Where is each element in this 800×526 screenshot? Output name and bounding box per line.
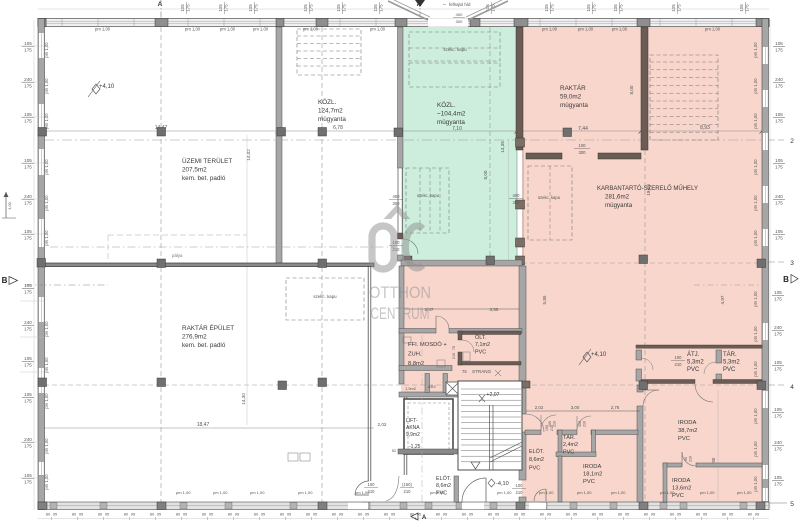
svg-text:ÁTJ.: ÁTJ. bbox=[687, 351, 700, 358]
svg-text:IRODA: IRODA bbox=[583, 464, 601, 470]
svg-text:RAKTÁR ÉPÜLET: RAKTÁR ÉPÜLET bbox=[182, 323, 234, 332]
svg-text:pm 1,00: pm 1,00 bbox=[611, 490, 626, 495]
svg-text:pm 1,00: pm 1,00 bbox=[753, 230, 758, 246]
svg-text:105: 105 bbox=[24, 473, 32, 478]
svg-text:pm 1,00: pm 1,00 bbox=[253, 27, 269, 32]
svg-text:95: 95 bbox=[625, 513, 629, 517]
svg-text:80: 80 bbox=[670, 513, 674, 517]
svg-text:mügyanta: mügyanta bbox=[318, 116, 346, 123]
svg-text:175: 175 bbox=[341, 4, 346, 12]
svg-text:80: 80 bbox=[566, 513, 570, 517]
svg-text:175: 175 bbox=[676, 4, 681, 12]
svg-text:59,0m2: 59,0m2 bbox=[560, 94, 582, 101]
svg-text:175: 175 bbox=[774, 332, 782, 337]
svg-text:pm 1,00: pm 1,00 bbox=[250, 490, 265, 495]
svg-text:80: 80 bbox=[124, 513, 128, 517]
svg-text:105: 105 bbox=[774, 290, 782, 295]
svg-text:175: 175 bbox=[775, 201, 783, 206]
svg-text:175: 175 bbox=[24, 84, 32, 89]
svg-text:pm 1,00: pm 1,00 bbox=[578, 27, 594, 32]
svg-text:207,5m2: 207,5m2 bbox=[182, 167, 207, 174]
svg-text:175: 175 bbox=[223, 4, 228, 12]
svg-text:szekc. kapu: szekc. kapu bbox=[417, 193, 440, 198]
svg-text:B: B bbox=[783, 275, 789, 284]
svg-text:90: 90 bbox=[684, 457, 688, 461]
svg-text:4,00: 4,00 bbox=[8, 202, 12, 209]
svg-text:175: 175 bbox=[378, 4, 383, 12]
svg-text:80: 80 bbox=[176, 513, 180, 517]
svg-text:175: 175 bbox=[24, 444, 32, 449]
svg-text:175: 175 bbox=[24, 399, 32, 404]
svg-text:7,1m2: 7,1m2 bbox=[475, 342, 490, 348]
svg-text:281,6m2: 281,6m2 bbox=[605, 194, 630, 201]
svg-text:175: 175 bbox=[24, 236, 32, 241]
svg-text:PVC: PVC bbox=[529, 465, 540, 471]
svg-text:CENTRUM: CENTRUM bbox=[371, 304, 430, 323]
svg-text:105: 105 bbox=[24, 41, 32, 46]
svg-text:mügyanta: mügyanta bbox=[560, 102, 588, 109]
svg-text:175: 175 bbox=[308, 4, 313, 12]
svg-text:4: 4 bbox=[790, 384, 794, 391]
svg-text:95: 95 bbox=[521, 513, 525, 517]
svg-text:szekc. kapu: szekc. kapu bbox=[443, 47, 467, 52]
svg-text:2,02: 2,02 bbox=[535, 405, 544, 410]
svg-text:8,8m2: 8,8m2 bbox=[408, 361, 424, 367]
svg-text:80: 80 bbox=[722, 513, 726, 517]
svg-text:7,10: 7,10 bbox=[452, 126, 462, 132]
svg-text:95: 95 bbox=[703, 513, 707, 517]
svg-text:~104,4m2: ~104,4m2 bbox=[437, 111, 466, 118]
svg-text:175: 175 bbox=[774, 447, 782, 452]
svg-text:175: 175 bbox=[774, 414, 782, 419]
svg-text:80: 80 bbox=[462, 513, 466, 517]
svg-text:175: 175 bbox=[24, 165, 32, 170]
svg-text:80: 80 bbox=[72, 513, 76, 517]
svg-text:+4,10: +4,10 bbox=[99, 84, 115, 90]
svg-text:5,3m2: 5,3m2 bbox=[723, 359, 740, 365]
svg-text:felhajtó híd: felhajtó híd bbox=[449, 2, 471, 7]
svg-text:105: 105 bbox=[24, 158, 32, 163]
svg-text:pm 1,00: pm 1,00 bbox=[213, 490, 228, 495]
svg-text:pálya: pálya bbox=[172, 253, 183, 258]
svg-text:80: 80 bbox=[618, 513, 622, 517]
svg-text:95: 95 bbox=[547, 513, 551, 517]
svg-text:80: 80 bbox=[358, 513, 362, 517]
svg-text:8,6m2: 8,6m2 bbox=[529, 457, 544, 463]
svg-text:52: 52 bbox=[392, 448, 397, 453]
svg-text:pm 1,00: pm 1,00 bbox=[700, 490, 715, 495]
svg-text:95: 95 bbox=[495, 513, 499, 517]
svg-text:IRODA: IRODA bbox=[678, 420, 696, 426]
svg-text:pm 1,00: pm 1,00 bbox=[303, 27, 319, 32]
svg-text:105: 105 bbox=[336, 4, 341, 12]
svg-text:TÁR.: TÁR. bbox=[723, 351, 737, 358]
svg-text:ÖLT.: ÖLT. bbox=[475, 334, 486, 341]
svg-text:8,93: 8,93 bbox=[700, 125, 710, 131]
svg-text:-1,25: -1,25 bbox=[409, 444, 421, 450]
svg-text:95: 95 bbox=[729, 513, 733, 517]
svg-text:400: 400 bbox=[513, 193, 521, 198]
svg-text:9,9m2: 9,9m2 bbox=[406, 432, 420, 438]
svg-text:95: 95 bbox=[365, 513, 369, 517]
svg-text:ELŐT.: ELŐT. bbox=[529, 448, 544, 455]
svg-text:105: 105 bbox=[739, 4, 744, 12]
svg-text:18,1m2: 18,1m2 bbox=[583, 472, 602, 478]
svg-text:OTTHON: OTTHON bbox=[369, 283, 431, 302]
svg-text:pm 1,00: pm 1,00 bbox=[185, 27, 201, 32]
svg-text:6,78: 6,78 bbox=[333, 125, 343, 131]
svg-text:pm 1,00: pm 1,00 bbox=[430, 490, 445, 495]
svg-text:75: 75 bbox=[462, 369, 467, 374]
svg-text:B: B bbox=[2, 276, 8, 285]
svg-text:80: 80 bbox=[644, 513, 648, 517]
svg-text:18,47: 18,47 bbox=[197, 422, 210, 428]
svg-text:80: 80 bbox=[228, 513, 232, 517]
svg-text:pm 1,00: pm 1,00 bbox=[705, 27, 721, 32]
svg-text:AKNA: AKNA bbox=[406, 425, 420, 431]
svg-text:pm 1,00: pm 1,00 bbox=[753, 78, 758, 94]
svg-text:80: 80 bbox=[332, 513, 336, 517]
svg-text:105: 105 bbox=[373, 4, 378, 12]
svg-text:175: 175 bbox=[24, 48, 32, 53]
svg-text:pm 1,00: pm 1,00 bbox=[370, 27, 386, 32]
svg-text:pm 1,00: pm 1,00 bbox=[660, 490, 675, 495]
svg-text:pm 1,00: pm 1,00 bbox=[737, 490, 752, 495]
svg-text:210: 210 bbox=[675, 362, 683, 367]
svg-text:pm 1,00: pm 1,00 bbox=[44, 438, 49, 454]
svg-text:95: 95 bbox=[235, 513, 239, 517]
svg-text:pm 1,00: pm 1,00 bbox=[44, 159, 49, 175]
svg-text:mügyanta: mügyanta bbox=[605, 202, 633, 209]
svg-text:105: 105 bbox=[586, 4, 591, 12]
svg-text:95: 95 bbox=[209, 513, 213, 517]
svg-text:95: 95 bbox=[443, 513, 447, 517]
svg-text:105: 105 bbox=[180, 4, 185, 12]
svg-text:14,30: 14,30 bbox=[241, 393, 246, 405]
svg-text:105: 105 bbox=[24, 112, 32, 117]
svg-text:400: 400 bbox=[393, 194, 401, 199]
svg-text:2,4m2: 2,4m2 bbox=[563, 442, 578, 448]
svg-text:105: 105 bbox=[303, 4, 308, 12]
svg-text:100: 100 bbox=[368, 482, 376, 487]
svg-text:7,44: 7,44 bbox=[578, 126, 588, 132]
svg-text:80: 80 bbox=[306, 513, 310, 517]
svg-text:80: 80 bbox=[696, 513, 700, 517]
svg-text:210: 210 bbox=[404, 489, 412, 494]
svg-text:100: 100 bbox=[675, 355, 683, 360]
svg-text:175: 175 bbox=[775, 84, 783, 89]
svg-text:2: 2 bbox=[790, 138, 794, 145]
svg-text:240: 240 bbox=[24, 437, 32, 442]
svg-text:175: 175 bbox=[253, 4, 258, 12]
svg-text:95: 95 bbox=[53, 513, 57, 517]
svg-text:pm 1,00: pm 1,00 bbox=[44, 42, 49, 58]
svg-text:mügyanta: mügyanta bbox=[437, 119, 465, 126]
svg-text:175: 175 bbox=[774, 482, 782, 487]
svg-text:95: 95 bbox=[469, 513, 473, 517]
svg-text:95: 95 bbox=[287, 513, 291, 517]
svg-text:3,00: 3,00 bbox=[571, 405, 580, 410]
svg-text:100: 100 bbox=[548, 421, 552, 427]
svg-text:175: 175 bbox=[744, 4, 749, 12]
svg-text:2,76: 2,76 bbox=[611, 405, 620, 410]
svg-text:14,02: 14,02 bbox=[246, 149, 251, 161]
svg-text:95: 95 bbox=[157, 513, 161, 517]
svg-text:A: A bbox=[422, 515, 427, 521]
svg-text:FFI. MOSDÓ +: FFI. MOSDÓ + bbox=[408, 341, 447, 348]
svg-text:2,02: 2,02 bbox=[378, 422, 387, 427]
svg-text:kem. bet. padló: kem. bet. padló bbox=[182, 342, 226, 349]
svg-text:300: 300 bbox=[456, 19, 463, 24]
svg-text:175: 175 bbox=[24, 201, 32, 206]
svg-text:szekc. kapu: szekc. kapu bbox=[538, 195, 561, 200]
svg-text:240: 240 bbox=[774, 325, 782, 330]
svg-text:240: 240 bbox=[24, 194, 32, 199]
svg-text:95: 95 bbox=[183, 513, 187, 517]
svg-text:300: 300 bbox=[513, 200, 521, 205]
svg-text:80: 80 bbox=[202, 513, 206, 517]
svg-text:pm 1,00: pm 1,00 bbox=[753, 476, 758, 492]
svg-text:pm 1,00: pm 1,00 bbox=[539, 490, 554, 495]
svg-text:pm 1,00: pm 1,00 bbox=[497, 490, 512, 495]
svg-text:75: 75 bbox=[452, 346, 456, 350]
svg-text:-4,10: -4,10 bbox=[496, 481, 509, 487]
svg-text:8,00: 8,00 bbox=[483, 170, 488, 179]
svg-text:PVC: PVC bbox=[678, 436, 690, 442]
svg-text:TÁR.: TÁR. bbox=[563, 434, 575, 441]
svg-text:(150): (150) bbox=[402, 482, 412, 487]
svg-text:PVC: PVC bbox=[687, 367, 700, 373]
svg-text:8,6m2: 8,6m2 bbox=[436, 483, 451, 489]
svg-text:80: 80 bbox=[98, 513, 102, 517]
svg-text:pm 1,00: pm 1,00 bbox=[753, 291, 758, 307]
svg-text:PVC: PVC bbox=[583, 479, 595, 485]
svg-text:95: 95 bbox=[573, 513, 577, 517]
svg-text:240: 240 bbox=[774, 440, 782, 445]
svg-text:95: 95 bbox=[313, 513, 317, 517]
svg-text:kem. bet. padló: kem. bet. padló bbox=[182, 175, 226, 182]
svg-text:175: 175 bbox=[775, 48, 783, 53]
svg-text:240: 240 bbox=[775, 194, 783, 199]
svg-text:95: 95 bbox=[599, 513, 603, 517]
svg-text:pm 1,00: pm 1,00 bbox=[176, 490, 191, 495]
svg-text:105: 105 bbox=[218, 4, 223, 12]
svg-text:13,6m2: 13,6m2 bbox=[672, 485, 691, 491]
svg-text:100: 100 bbox=[578, 421, 582, 427]
svg-text:PVC: PVC bbox=[563, 449, 574, 455]
svg-text:pm 1,00: pm 1,00 bbox=[44, 393, 49, 409]
svg-text:80: 80 bbox=[488, 513, 492, 517]
svg-text:175: 175 bbox=[549, 4, 554, 12]
svg-text:175: 175 bbox=[24, 363, 32, 368]
svg-text:+4,10: +4,10 bbox=[591, 352, 607, 358]
svg-text:pm 1,00: pm 1,00 bbox=[95, 27, 111, 32]
svg-text:ZUH.: ZUH. bbox=[408, 351, 422, 357]
svg-text:pm 1,00: pm 1,00 bbox=[753, 113, 758, 129]
svg-text:80: 80 bbox=[514, 513, 518, 517]
svg-text:240: 240 bbox=[775, 77, 783, 82]
svg-text:175: 175 bbox=[774, 297, 782, 302]
svg-text:276,9m2: 276,9m2 bbox=[182, 334, 207, 341]
svg-text:pm 1,00: pm 1,00 bbox=[542, 27, 558, 32]
svg-text:95: 95 bbox=[261, 513, 265, 517]
svg-text:pm 1,00: pm 1,00 bbox=[44, 195, 49, 211]
svg-text:pm 1,00: pm 1,00 bbox=[753, 326, 758, 342]
svg-text:210: 210 bbox=[452, 353, 456, 359]
svg-text:105: 105 bbox=[774, 407, 782, 412]
svg-text:175: 175 bbox=[775, 165, 783, 170]
svg-text:95: 95 bbox=[755, 513, 759, 517]
svg-text:KÖZL.: KÖZL. bbox=[437, 101, 456, 109]
svg-text:105: 105 bbox=[24, 392, 32, 397]
svg-text:175: 175 bbox=[24, 480, 32, 485]
svg-text:100: 100 bbox=[516, 483, 524, 488]
svg-text:ÁR2: ÁR2 bbox=[428, 384, 437, 389]
svg-text:38,7m2: 38,7m2 bbox=[678, 428, 697, 434]
svg-text:210: 210 bbox=[516, 490, 524, 495]
svg-text:PVC: PVC bbox=[475, 349, 486, 355]
svg-text:pm 1,00: pm 1,00 bbox=[44, 321, 49, 337]
svg-text:95: 95 bbox=[131, 513, 135, 517]
svg-text:105: 105 bbox=[775, 41, 783, 46]
svg-text:3: 3 bbox=[790, 260, 794, 267]
svg-text:RAKTÁR: RAKTÁR bbox=[560, 83, 586, 92]
svg-text:ÜZEMI TERÜLET: ÜZEMI TERÜLET bbox=[182, 157, 232, 165]
svg-text:175: 175 bbox=[185, 4, 190, 12]
svg-text:pm 1,00: pm 1,00 bbox=[753, 408, 758, 424]
svg-text:105: 105 bbox=[774, 360, 782, 365]
svg-text:400: 400 bbox=[456, 12, 463, 17]
svg-text:95: 95 bbox=[651, 513, 655, 517]
svg-text:pm 1,00: pm 1,00 bbox=[355, 490, 370, 495]
svg-text:80: 80 bbox=[254, 513, 258, 517]
svg-text:pm 1,00: pm 1,00 bbox=[44, 113, 49, 129]
svg-text:95: 95 bbox=[677, 513, 681, 517]
svg-text:pm 1,00: pm 1,00 bbox=[753, 159, 758, 175]
svg-text:80: 80 bbox=[540, 513, 544, 517]
svg-text:210: 210 bbox=[689, 456, 693, 462]
svg-text:KÖZL.: KÖZL. bbox=[318, 98, 337, 106]
svg-text:14,38: 14,38 bbox=[500, 141, 505, 153]
svg-text:175: 175 bbox=[24, 119, 32, 124]
svg-text:1,9m2: 1,9m2 bbox=[405, 386, 417, 391]
svg-text:pm 1,00: pm 1,00 bbox=[44, 474, 49, 490]
svg-text:szekc. kapu: szekc. kapu bbox=[313, 294, 337, 299]
svg-text:105: 105 bbox=[24, 356, 32, 361]
svg-text:80: 80 bbox=[436, 513, 440, 517]
svg-text:300: 300 bbox=[579, 150, 587, 155]
svg-text:pm 1,00: pm 1,00 bbox=[753, 441, 758, 457]
svg-text:175: 175 bbox=[24, 327, 32, 332]
svg-text:95: 95 bbox=[105, 513, 109, 517]
svg-text:105: 105 bbox=[544, 4, 549, 12]
svg-text:105: 105 bbox=[774, 475, 782, 480]
svg-text:240: 240 bbox=[24, 77, 32, 82]
svg-text:175: 175 bbox=[775, 236, 783, 241]
svg-text:80: 80 bbox=[46, 513, 50, 517]
svg-text:175: 175 bbox=[591, 4, 596, 12]
svg-text:A: A bbox=[158, 1, 163, 8]
svg-text:95: 95 bbox=[339, 513, 343, 517]
svg-text:pm 1,00: pm 1,00 bbox=[577, 490, 592, 495]
svg-text:105: 105 bbox=[613, 4, 618, 12]
svg-text:ELŐT.: ELŐT. bbox=[436, 475, 451, 482]
svg-text:pm 1,00: pm 1,00 bbox=[44, 230, 49, 246]
svg-text:175: 175 bbox=[774, 367, 782, 372]
svg-text:80: 80 bbox=[592, 513, 596, 517]
svg-text:STRANG: STRANG bbox=[472, 369, 492, 374]
svg-text:pm 1,00: pm 1,00 bbox=[44, 78, 49, 94]
svg-text:8,00: 8,00 bbox=[629, 85, 634, 94]
svg-text:210: 210 bbox=[583, 421, 587, 427]
svg-text:105: 105 bbox=[248, 4, 253, 12]
svg-text:80: 80 bbox=[384, 513, 388, 517]
svg-text:105: 105 bbox=[775, 229, 783, 234]
svg-text:4,97: 4,97 bbox=[720, 295, 725, 304]
svg-text:LIFT-: LIFT- bbox=[406, 418, 418, 424]
svg-text:PVC: PVC bbox=[723, 367, 736, 373]
svg-text:80: 80 bbox=[150, 513, 154, 517]
svg-text:80: 80 bbox=[280, 513, 284, 517]
svg-text:240: 240 bbox=[24, 320, 32, 325]
svg-text:5,3m2: 5,3m2 bbox=[687, 359, 704, 365]
svg-text:105: 105 bbox=[775, 158, 783, 163]
svg-text:124,7m2: 124,7m2 bbox=[318, 108, 343, 115]
svg-text:pm 1,00: pm 1,00 bbox=[753, 195, 758, 211]
svg-text:105: 105 bbox=[775, 112, 783, 117]
svg-text:pm 1,00: pm 1,00 bbox=[220, 27, 236, 32]
svg-text:pm 1,00: pm 1,00 bbox=[612, 27, 628, 32]
svg-text:105: 105 bbox=[24, 283, 32, 288]
svg-text:100: 100 bbox=[579, 143, 587, 148]
svg-text:105: 105 bbox=[671, 4, 676, 12]
svg-text:5: 5 bbox=[790, 501, 794, 508]
svg-text:105: 105 bbox=[24, 229, 32, 234]
svg-text:pm 1,00: pm 1,00 bbox=[298, 490, 313, 495]
svg-text:+2,07: +2,07 bbox=[486, 392, 499, 398]
svg-text:175: 175 bbox=[24, 290, 32, 295]
svg-text:5,85: 5,85 bbox=[542, 295, 547, 304]
svg-text:95: 95 bbox=[79, 513, 83, 517]
svg-text:210: 210 bbox=[553, 421, 557, 427]
svg-text:pm 1,00: pm 1,00 bbox=[753, 361, 758, 377]
svg-text:pm 1,00: pm 1,00 bbox=[753, 42, 758, 58]
svg-text:175: 175 bbox=[618, 4, 623, 12]
svg-text:3,55: 3,55 bbox=[490, 307, 499, 312]
svg-text:KARBANTARTÓ-SZERELŐ MŰHELY: KARBANTARTÓ-SZERELŐ MŰHELY bbox=[597, 185, 698, 192]
svg-text:80: 80 bbox=[748, 513, 752, 517]
svg-text:95: 95 bbox=[391, 513, 395, 517]
svg-text:175: 175 bbox=[775, 119, 783, 124]
svg-text:IRODA: IRODA bbox=[672, 478, 690, 484]
svg-text:pm 1,00: pm 1,00 bbox=[44, 357, 49, 373]
